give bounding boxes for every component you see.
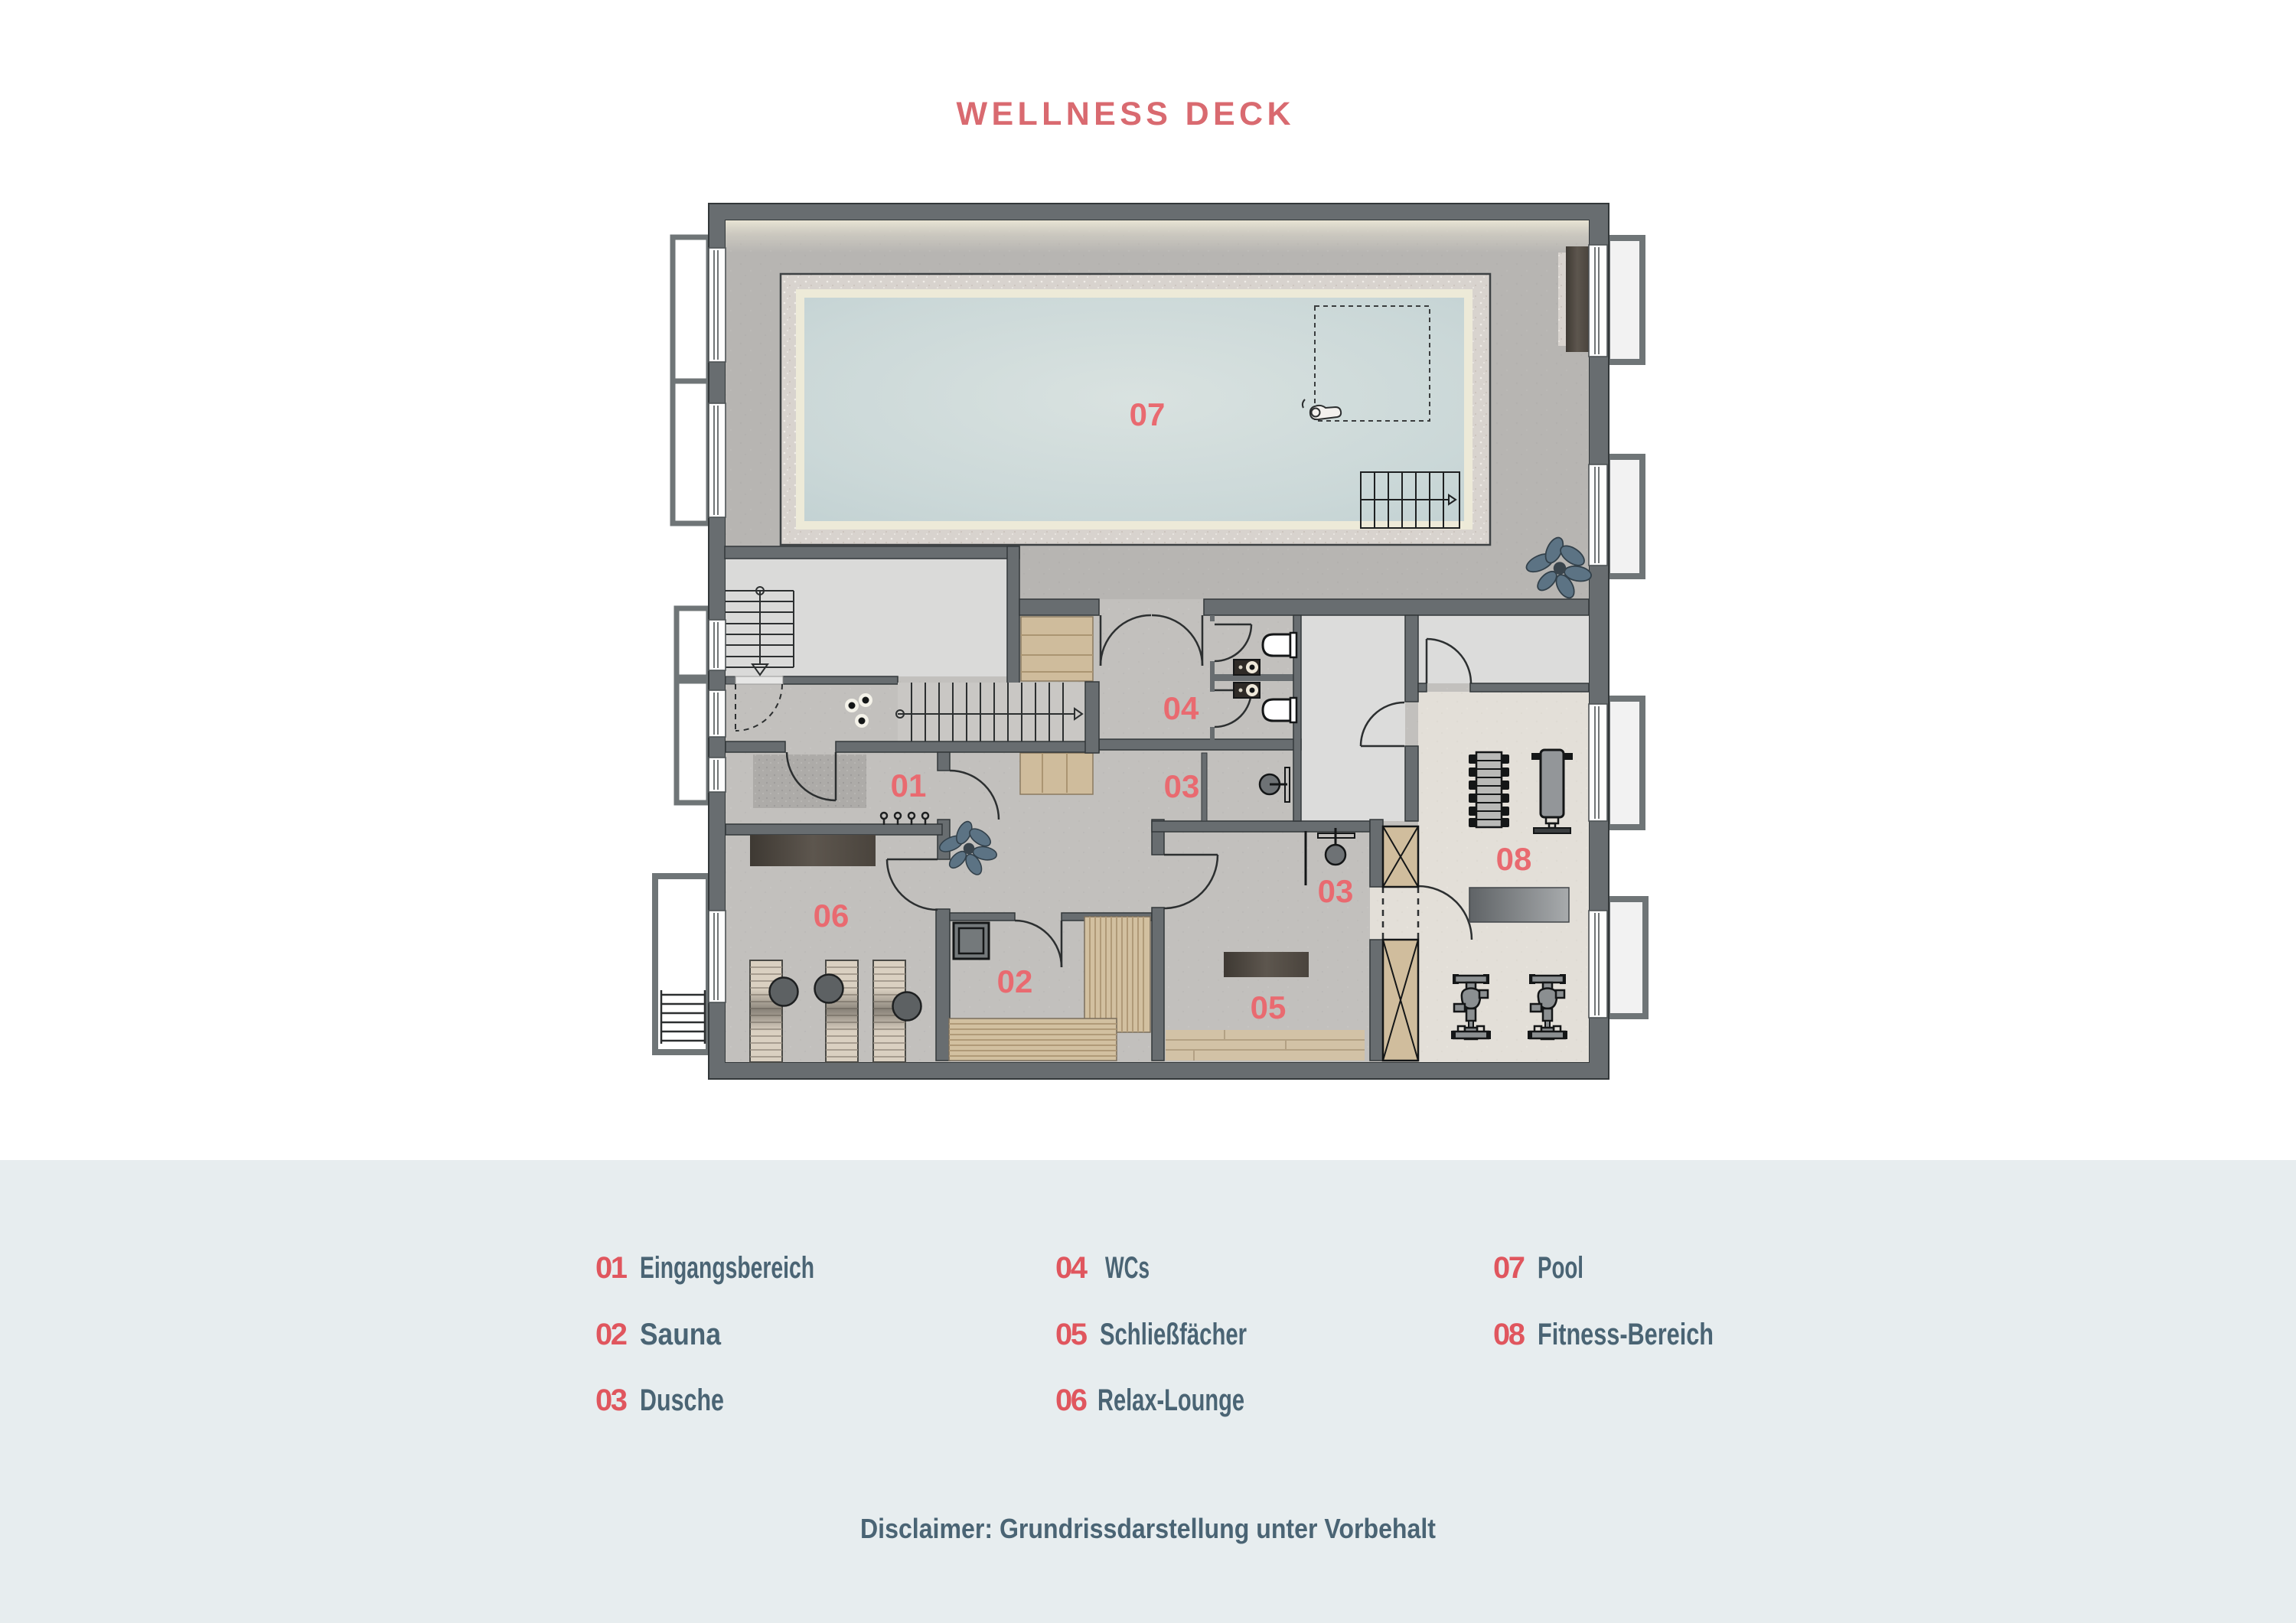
svg-text:08: 08: [1493, 1318, 1525, 1351]
svg-text:05: 05: [1055, 1318, 1088, 1351]
svg-text:Schließfächer: Schließfächer: [1100, 1318, 1247, 1351]
svg-text:Relax-Lounge: Relax-Lounge: [1097, 1383, 1244, 1417]
svg-text:05: 05: [1251, 989, 1287, 1025]
svg-text:04: 04: [1163, 690, 1199, 726]
svg-text:03: 03: [595, 1383, 628, 1417]
svg-text:Eingangsbereich: Eingangsbereich: [640, 1251, 814, 1285]
svg-text:01: 01: [595, 1251, 628, 1285]
svg-text:06: 06: [1055, 1383, 1088, 1417]
svg-text:WELLNESS DECK: WELLNESS DECK: [957, 96, 1291, 132]
svg-text:03: 03: [1164, 768, 1200, 804]
svg-text:08: 08: [1496, 841, 1532, 877]
svg-text:07: 07: [1493, 1251, 1525, 1285]
svg-text:04: 04: [1055, 1251, 1088, 1285]
svg-text:02: 02: [595, 1318, 628, 1351]
svg-text:03: 03: [1318, 873, 1354, 909]
svg-text:07: 07: [1130, 396, 1166, 432]
svg-text:01: 01: [891, 768, 927, 803]
svg-text:Dusche: Dusche: [640, 1383, 724, 1417]
svg-text:Sauna: Sauna: [640, 1318, 722, 1351]
svg-text:WCs: WCs: [1105, 1251, 1150, 1285]
svg-text:02: 02: [997, 963, 1033, 999]
svg-text:Fitness-Bereich: Fitness-Bereich: [1538, 1318, 1714, 1351]
svg-text:Pool: Pool: [1538, 1251, 1583, 1285]
svg-text:06: 06: [814, 898, 850, 934]
svg-text:Disclaimer: Grundrissdarstellu: Disclaimer: Grundrissdarstellung unter V…: [860, 1513, 1436, 1544]
